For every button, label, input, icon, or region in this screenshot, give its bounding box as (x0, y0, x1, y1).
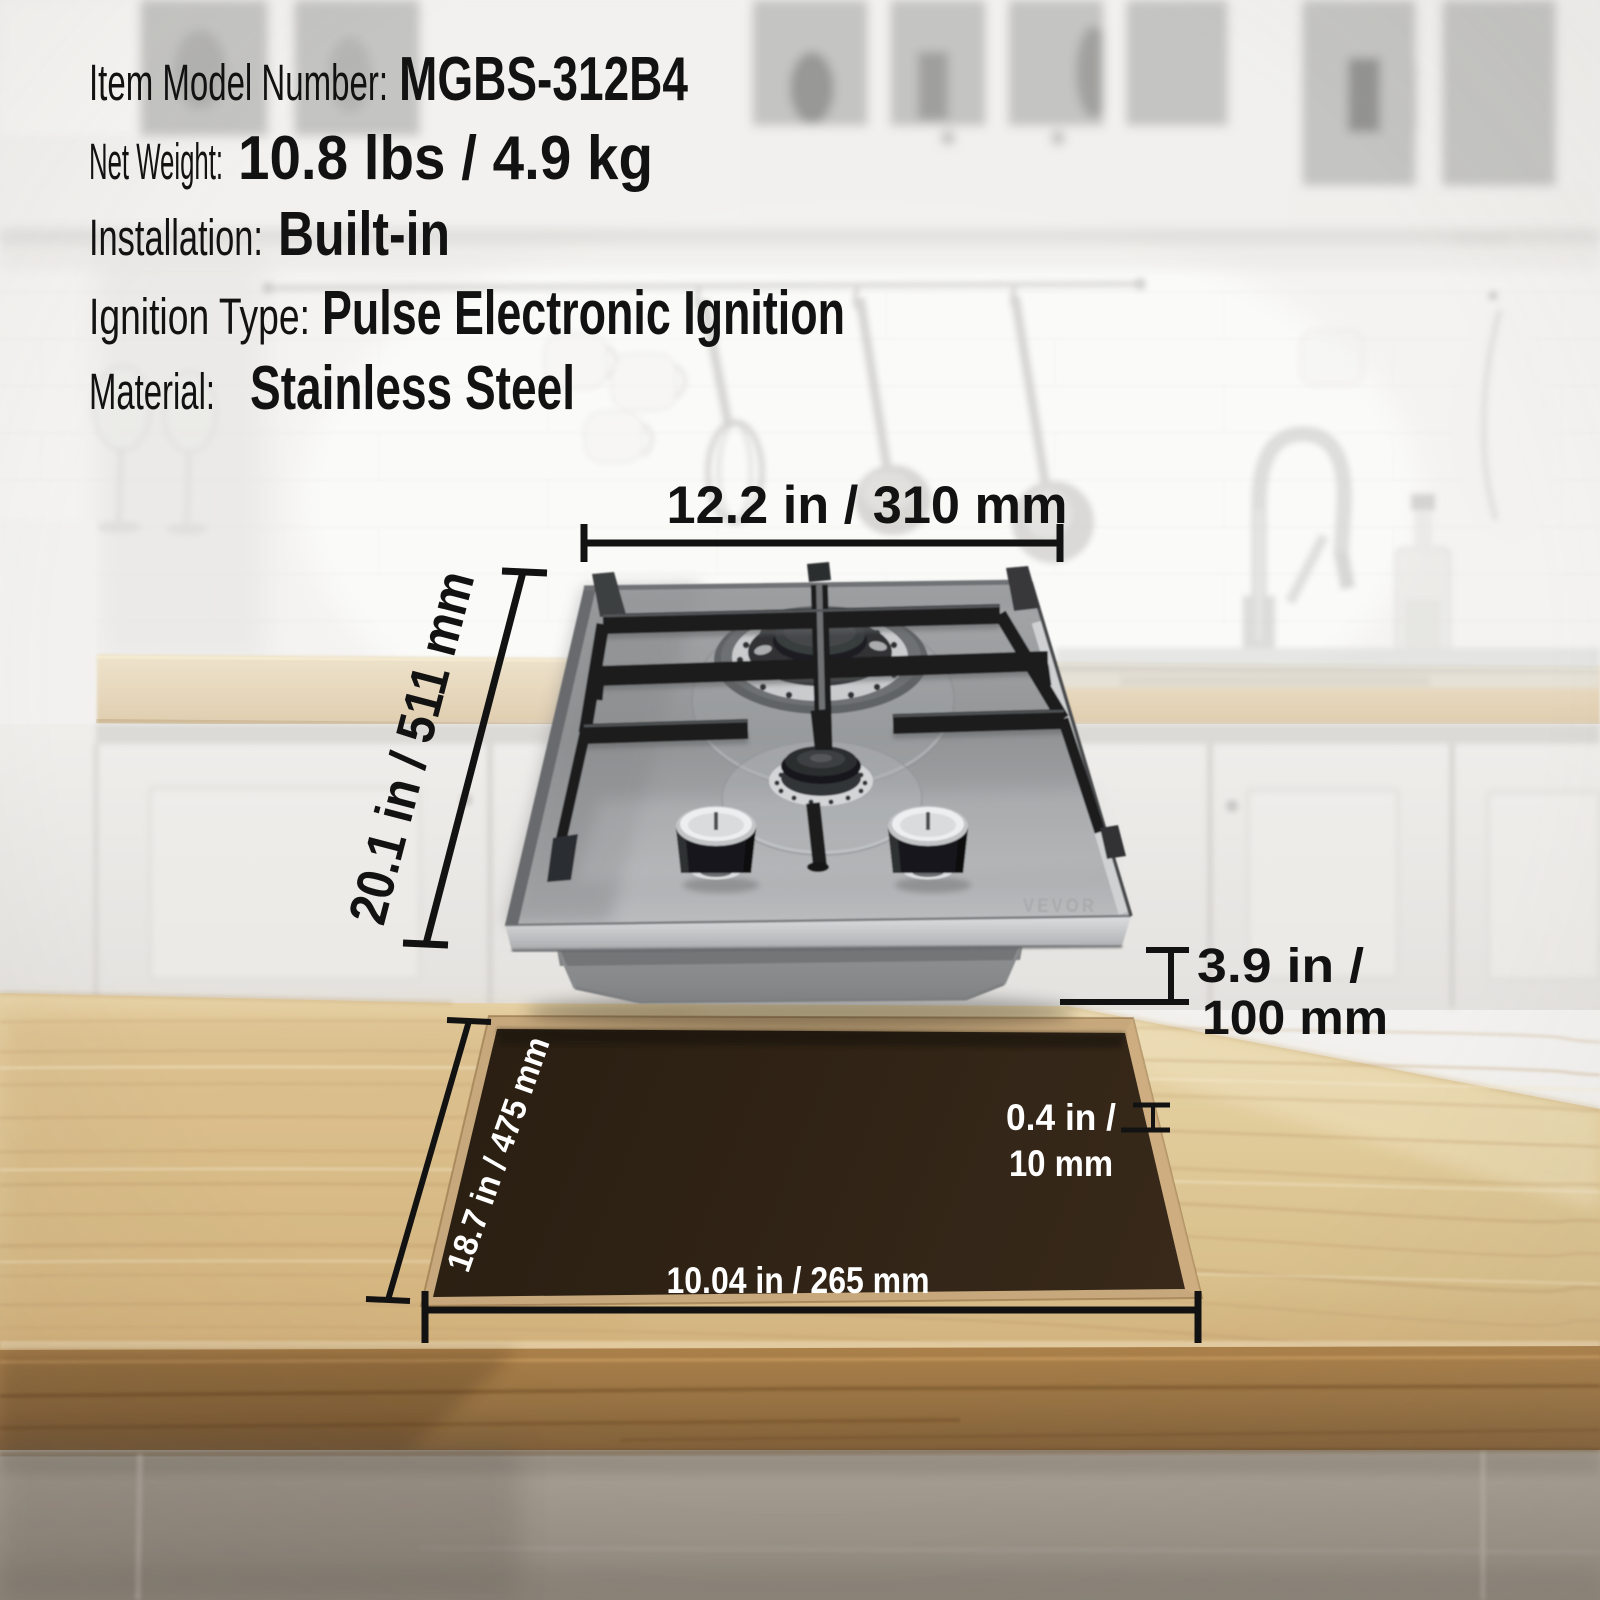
svg-text:Installation:: Installation: (89, 209, 263, 266)
svg-text:Stainless Steel: Stainless Steel (250, 354, 575, 423)
svg-text:12.2 in / 310 mm: 12.2 in / 310 mm (667, 476, 1068, 535)
svg-text:MGBS-312B4: MGBS-312B4 (399, 45, 688, 114)
svg-text:10 mm: 10 mm (1009, 1143, 1113, 1184)
svg-text:Net Weight:: Net Weight: (89, 133, 223, 190)
svg-text:Material:: Material: (89, 363, 215, 420)
svg-text:10.8 lbs / 4.9 kg: 10.8 lbs / 4.9 kg (238, 124, 653, 193)
svg-text:10.04 in / 265 mm: 10.04 in / 265 mm (667, 1260, 930, 1301)
svg-text:100 mm: 100 mm (1202, 992, 1388, 1045)
svg-text:Built-in: Built-in (278, 200, 450, 269)
svg-text:Ignition Type:: Ignition Type: (89, 288, 310, 345)
svg-text:Item Model Number:: Item Model Number: (89, 54, 388, 111)
svg-text:3.9 in /: 3.9 in / (1197, 940, 1364, 993)
svg-text:Pulse Electronic Ignition: Pulse Electronic Ignition (322, 279, 845, 348)
svg-text:0.4 in /: 0.4 in / (1006, 1097, 1116, 1138)
